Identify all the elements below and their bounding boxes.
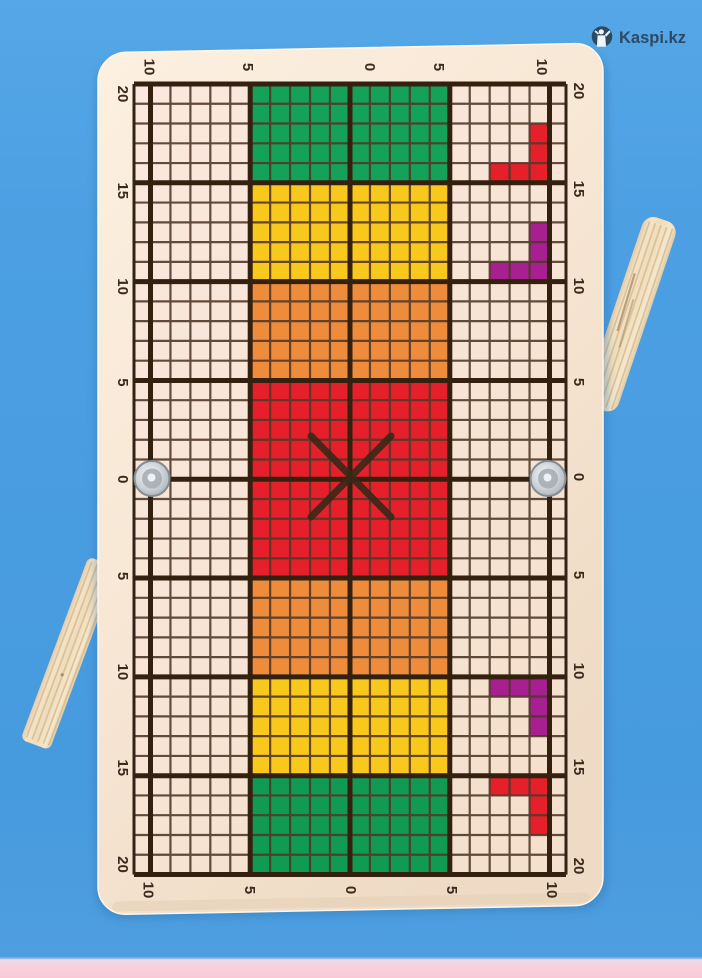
svg-text:5: 5 [570, 571, 587, 579]
svg-text:10: 10 [114, 278, 131, 295]
svg-text:10: 10 [533, 59, 550, 76]
svg-text:10: 10 [570, 663, 587, 680]
svg-text:10: 10 [570, 278, 587, 295]
svg-text:5: 5 [241, 886, 258, 894]
svg-text:10: 10 [543, 882, 560, 899]
svg-text:0: 0 [570, 473, 587, 481]
svg-text:15: 15 [570, 759, 587, 776]
svg-text:Kaspi.kz: Kaspi.kz [619, 29, 686, 47]
svg-text:10: 10 [114, 664, 131, 681]
svg-text:5: 5 [443, 886, 460, 894]
svg-text:20: 20 [114, 86, 131, 103]
svg-text:5: 5 [570, 378, 587, 386]
svg-text:15: 15 [114, 759, 131, 776]
svg-text:20: 20 [570, 858, 587, 875]
svg-text:0: 0 [342, 886, 359, 894]
svg-text:5: 5 [114, 378, 131, 386]
svg-text:10: 10 [140, 882, 157, 899]
svg-text:15: 15 [114, 182, 131, 199]
svg-text:15: 15 [570, 181, 587, 198]
svg-text:5: 5 [114, 572, 131, 580]
svg-text:20: 20 [570, 83, 587, 100]
svg-text:0: 0 [114, 475, 131, 483]
svg-text:5: 5 [430, 63, 447, 71]
svg-text:20: 20 [114, 856, 131, 873]
svg-text:10: 10 [141, 59, 158, 76]
svg-text:5: 5 [239, 63, 256, 71]
svg-text:0: 0 [361, 63, 378, 71]
